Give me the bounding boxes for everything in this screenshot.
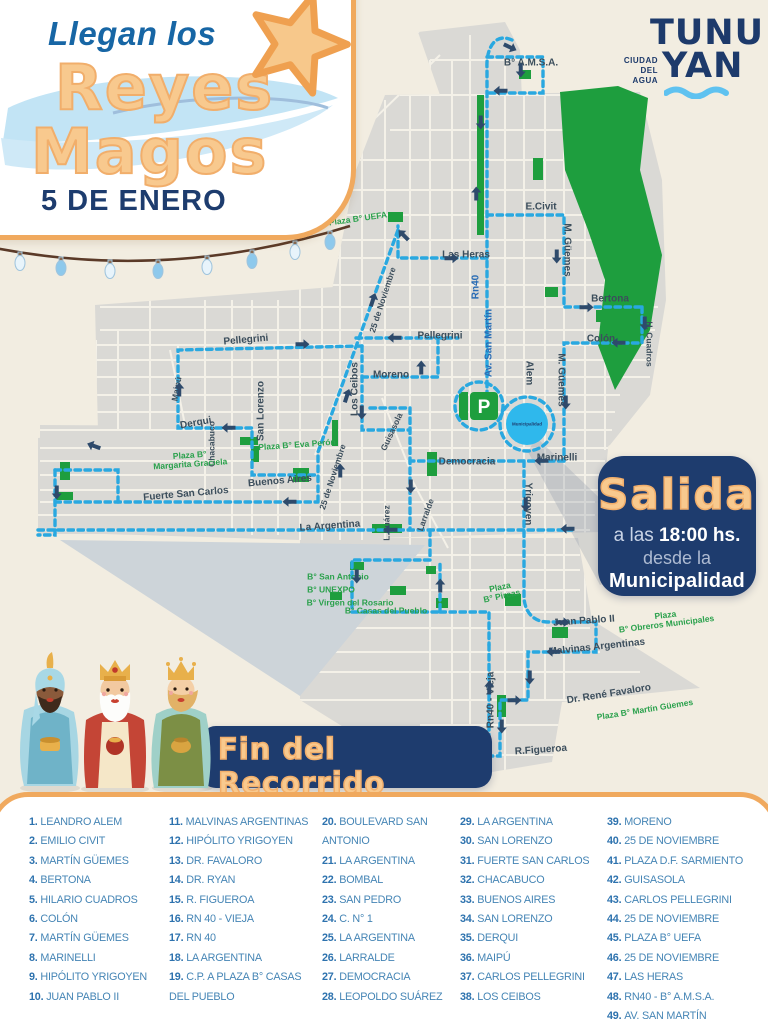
street-list-item: 2. EMILIO CIVIT: [29, 832, 169, 851]
street-number: 38.: [460, 991, 477, 1003]
street-list-item: 36. MAIPÚ: [460, 949, 607, 968]
logo-line2: YAN: [662, 50, 743, 83]
street-name: JUAN PABLO II: [46, 991, 119, 1003]
street-number: 9.: [29, 971, 40, 983]
title-main-line1: Reyes: [55, 51, 274, 124]
street-list-item: 1. LEANDRO ALEM: [29, 813, 169, 832]
street-name: MORENO: [624, 816, 671, 828]
street-list-item: 11. MALVINAS ARGENTINAS: [169, 813, 322, 832]
street-number: 44.: [607, 913, 624, 925]
street-number: 35.: [460, 932, 477, 944]
streets-column: 39. MORENO40. 25 DE NOVIEMBRE41. PLAZA D…: [607, 813, 767, 1024]
header-card: Llegan los Reyes Magos 5 DE ENERO: [0, 0, 356, 240]
street-list-item: 22. BOMBAL: [322, 871, 460, 890]
salida-card: Salida a las 18:00 hs. desde la Municipa…: [598, 456, 756, 596]
street-number: 5.: [29, 894, 40, 906]
street-number: 33.: [460, 894, 477, 906]
fin-card: Fin del Recorrido a las 22:00 hs. aprox.…: [200, 726, 492, 788]
street-number: 28.: [322, 991, 339, 1003]
salida-time: a las 18:00 hs.: [598, 525, 756, 547]
street-number: 11.: [169, 816, 186, 828]
date-label: 5 DE ENERO: [41, 185, 227, 218]
street-list-item: 15. R. FIGUEROA: [169, 891, 322, 910]
street-list-item: 48. RN40 - B° A.M.S.A.: [607, 988, 767, 1007]
street-list-item: 4. BERTONA: [29, 871, 169, 890]
street-name: AV. SAN MARTÍN: [624, 1010, 706, 1022]
street-list-item: 29. LA ARGENTINA: [460, 813, 607, 832]
king-caspar: [151, 657, 210, 788]
street-name: RN 40 - VIEJA: [186, 913, 254, 925]
footer-card: 1. LEANDRO ALEM2. EMILIO CIVIT3. MARTÍN …: [0, 792, 768, 1024]
street-name: FUERTE SAN CARLOS: [477, 855, 589, 867]
street-number: 21.: [322, 855, 339, 867]
street-number: 31.: [460, 855, 477, 867]
salida-title: Salida: [598, 470, 756, 519]
street-name: SAN LORENZO: [477, 835, 552, 847]
street-list-item: 43. CARLOS PELLEGRINI: [607, 891, 767, 910]
street-list-item: 10. JUAN PABLO II: [29, 988, 169, 1007]
king-balthazar: [20, 652, 79, 786]
street-number: 3.: [29, 855, 40, 867]
parking-landmark: P: [470, 392, 498, 420]
street-number: 32.: [460, 874, 477, 886]
street-number: 26.: [322, 952, 339, 964]
street-number: 47.: [607, 971, 624, 983]
street-name: PLAZA D.F. SARMIENTO: [624, 855, 743, 867]
title-script: Llegan los: [48, 15, 216, 53]
street-list-item: 49. AV. SAN MARTÍN: [607, 1007, 767, 1024]
street-list-item: 21. LA ARGENTINA: [322, 852, 460, 871]
street-number: 39.: [607, 816, 624, 828]
roundabout-label: Municipalidad: [512, 422, 542, 427]
street-number: 29.: [460, 816, 477, 828]
street-number: 14.: [169, 874, 186, 886]
street-number: 19.: [169, 971, 186, 983]
street-number: 34.: [460, 913, 477, 925]
street-list-item: 13. DR. FAVALORO: [169, 852, 322, 871]
street-name: LAS HERAS: [624, 971, 683, 983]
salida-from: desde la: [598, 548, 756, 569]
street-number: 20.: [322, 816, 339, 828]
street-name: LA ARGENTINA: [339, 855, 415, 867]
street-list-item: 35. DERQUI: [460, 929, 607, 948]
street-number: 40.: [607, 835, 624, 847]
street-name: HIPÓLITO YRIGOYEN: [40, 971, 147, 983]
streets-columns: 1. LEANDRO ALEM2. EMILIO CIVIT3. MARTÍN …: [29, 813, 768, 1024]
salida-place: Municipalidad: [598, 570, 756, 593]
street-number: 16.: [169, 913, 186, 925]
street-number: 17.: [169, 932, 186, 944]
street-list-item: 7. MARTÍN GÜEMES: [29, 929, 169, 948]
street-list-item: 25. LA ARGENTINA: [322, 929, 460, 948]
street-name: 25 DE NOVIEMBRE: [624, 913, 719, 925]
tunuyan-logo: TUNU CIUDAD DEL AGUA YAN: [622, 18, 754, 104]
street-number: 45.: [607, 932, 624, 944]
street-list-item: 47. LAS HERAS: [607, 968, 767, 987]
street-name: DR. FAVALORO: [186, 855, 262, 867]
street-number: 6.: [29, 913, 40, 925]
street-name: R. FIGUEROA: [186, 894, 254, 906]
street-number: 7.: [29, 932, 40, 944]
street-name: PLAZA B° UEFA: [624, 932, 701, 944]
streets-column: 1. LEANDRO ALEM2. EMILIO CIVIT3. MARTÍN …: [29, 813, 169, 1024]
street-name: CARLOS PELLEGRINI: [624, 894, 732, 906]
street-name: SAN LORENZO: [477, 913, 552, 925]
street-name: LOS CEIBOS: [477, 991, 540, 1003]
street-number: 48.: [607, 991, 624, 1003]
street-list-item: 33. BUENOS AIRES: [460, 891, 607, 910]
streets-column: 11. MALVINAS ARGENTINAS12. HIPÓLITO YRIG…: [169, 813, 322, 1024]
street-name: BERTONA: [40, 874, 90, 886]
street-number: 18.: [169, 952, 186, 964]
street-list-item: 34. SAN LORENZO: [460, 910, 607, 929]
street-list-item: 24. C. N° 1: [322, 910, 460, 929]
street-number: 46.: [607, 952, 624, 964]
street-number: 13.: [169, 855, 186, 867]
street-name: RN40 - B° A.M.S.A.: [624, 991, 714, 1003]
street-list-item: 18. LA ARGENTINA: [169, 949, 322, 968]
three-kings-illustration: [12, 648, 217, 796]
street-number: 23.: [322, 894, 339, 906]
street-list-item: 31. FUERTE SAN CARLOS: [460, 852, 607, 871]
street-number: 27.: [322, 971, 339, 983]
street-number: 12.: [169, 835, 186, 847]
logo-tagline: CIUDAD DEL AGUA: [622, 56, 658, 86]
street-list-item: 6. COLÓN: [29, 910, 169, 929]
street-name: CHACABUCO: [477, 874, 544, 886]
street-list-item: 5. HILARIO CUADROS: [29, 891, 169, 910]
street-list-item: 40. 25 DE NOVIEMBRE: [607, 832, 767, 851]
street-list-item: 17. RN 40: [169, 929, 322, 948]
poster: P B° A.M.S.A.E.CivitM. GüemesLas HerasBe…: [0, 0, 768, 1024]
water-wave-icon: [664, 85, 734, 99]
street-number: 25.: [322, 932, 339, 944]
street-name: LEANDRO ALEM: [40, 816, 122, 828]
street-list-item: 3. MARTÍN GÜEMES: [29, 852, 169, 871]
street-number: 49.: [607, 1010, 624, 1022]
street-list-item: 45. PLAZA B° UEFA: [607, 929, 767, 948]
street-name: LEOPOLDO SUÁREZ: [339, 991, 442, 1003]
street-name: COLÓN: [40, 913, 77, 925]
street-name: CARLOS PELLEGRINI: [477, 971, 585, 983]
street-list-item: 32. CHACABUCO: [460, 871, 607, 890]
street-list-item: 37. CARLOS PELLEGRINI: [460, 968, 607, 987]
street-number: 2.: [29, 835, 40, 847]
street-list-item: 14. DR. RYAN: [169, 871, 322, 890]
street-list-item: 27. DEMOCRACIA: [322, 968, 460, 987]
street-name: MALVINAS ARGENTINAS: [186, 816, 309, 828]
street-number: 36.: [460, 952, 477, 964]
street-name: EMILIO CIVIT: [40, 835, 105, 847]
street-list-item: 9. HIPÓLITO YRIGOYEN: [29, 968, 169, 987]
street-name: C.P. A PLAZA B° CASAS DEL PUEBLO: [169, 971, 301, 1002]
street-name: SAN PEDRO: [339, 894, 401, 906]
street-number: 41.: [607, 855, 624, 867]
street-list-item: 30. SAN LORENZO: [460, 832, 607, 851]
street-name: MARTÍN GÜEMES: [40, 932, 128, 944]
streets-column: 29. LA ARGENTINA30. SAN LORENZO31. FUERT…: [460, 813, 607, 1024]
street-list-item: 16. RN 40 - VIEJA: [169, 910, 322, 929]
street-number: 30.: [460, 835, 477, 847]
street-list-item: 23. SAN PEDRO: [322, 891, 460, 910]
street-number: 15.: [169, 894, 186, 906]
fin-title: Fin del Recorrido: [218, 732, 492, 800]
street-name: GUISASOLA: [624, 874, 685, 886]
street-number: 43.: [607, 894, 624, 906]
street-number: 22.: [322, 874, 339, 886]
street-name: RN 40: [186, 932, 216, 944]
street-name: DR. RYAN: [186, 874, 235, 886]
street-name: MAIPÚ: [477, 952, 510, 964]
street-name: DEMOCRACIA: [339, 971, 410, 983]
street-number: 8.: [29, 952, 40, 964]
street-number: 24.: [322, 913, 339, 925]
street-name: LA ARGENTINA: [339, 932, 415, 944]
streets-column: 20. BOULEVARD SAN ANTONIO21. LA ARGENTIN…: [322, 813, 460, 1024]
street-number: 10.: [29, 991, 46, 1003]
street-number: 1.: [29, 816, 40, 828]
street-number: 4.: [29, 874, 40, 886]
street-list-item: 8. MARINELLI: [29, 949, 169, 968]
street-list-item: 20. BOULEVARD SAN ANTONIO: [322, 813, 460, 852]
street-list-item: 46. 25 DE NOVIEMBRE: [607, 949, 767, 968]
street-list-item: 41. PLAZA D.F. SARMIENTO: [607, 852, 767, 871]
street-list-item: 42. GUISASOLA: [607, 871, 767, 890]
street-name: 25 DE NOVIEMBRE: [624, 835, 719, 847]
street-name: LA ARGENTINA: [477, 816, 553, 828]
street-name: BOMBAL: [339, 874, 383, 886]
street-list-item: 38. LOS CEIBOS: [460, 988, 607, 1007]
title-main-line2: Magos: [31, 115, 268, 188]
street-name: HIPÓLITO YRIGOYEN: [186, 835, 293, 847]
king-melchior: [84, 660, 146, 788]
parking-letter: P: [478, 397, 491, 418]
street-list-item: 28. LEOPOLDO SUÁREZ: [322, 988, 460, 1007]
street-list-item: 26. LARRALDE: [322, 949, 460, 968]
street-list-item: 19. C.P. A PLAZA B° CASAS DEL PUEBLO: [169, 968, 322, 1007]
street-name: BUENOS AIRES: [477, 894, 555, 906]
street-list-item: 44. 25 DE NOVIEMBRE: [607, 910, 767, 929]
star-icon: [243, 0, 353, 101]
street-name: LA ARGENTINA: [186, 952, 262, 964]
street-name: MARTÍN GÜEMES: [40, 855, 128, 867]
street-name: MARINELLI: [40, 952, 95, 964]
street-name: 25 DE NOVIEMBRE: [624, 952, 719, 964]
street-name: DERQUI: [477, 932, 518, 944]
street-name: LARRALDE: [339, 952, 394, 964]
street-number: 42.: [607, 874, 624, 886]
street-list-item: 39. MORENO: [607, 813, 767, 832]
street-name: C. N° 1: [339, 913, 373, 925]
logo-line1: TUNU: [622, 18, 754, 50]
street-list-item: 12. HIPÓLITO YRIGOYEN: [169, 832, 322, 851]
street-name: HILARIO CUADROS: [40, 894, 137, 906]
street-number: 37.: [460, 971, 477, 983]
